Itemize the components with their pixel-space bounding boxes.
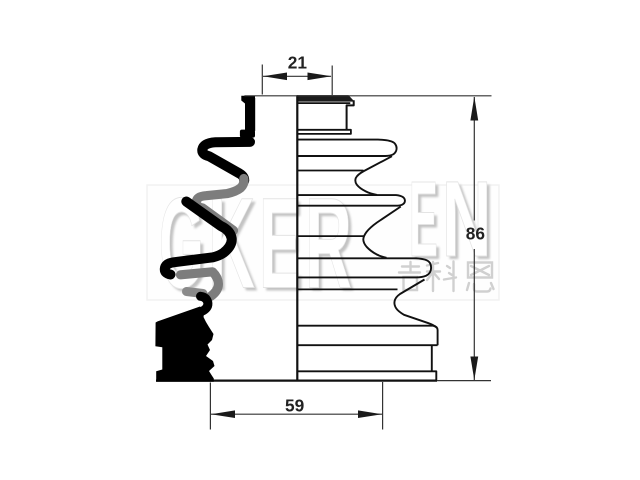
- svg-text:59: 59: [285, 395, 304, 415]
- svg-text:E: E: [259, 172, 301, 316]
- svg-text:86: 86: [466, 224, 485, 244]
- svg-text:21: 21: [288, 53, 308, 73]
- svg-text:R: R: [305, 171, 352, 315]
